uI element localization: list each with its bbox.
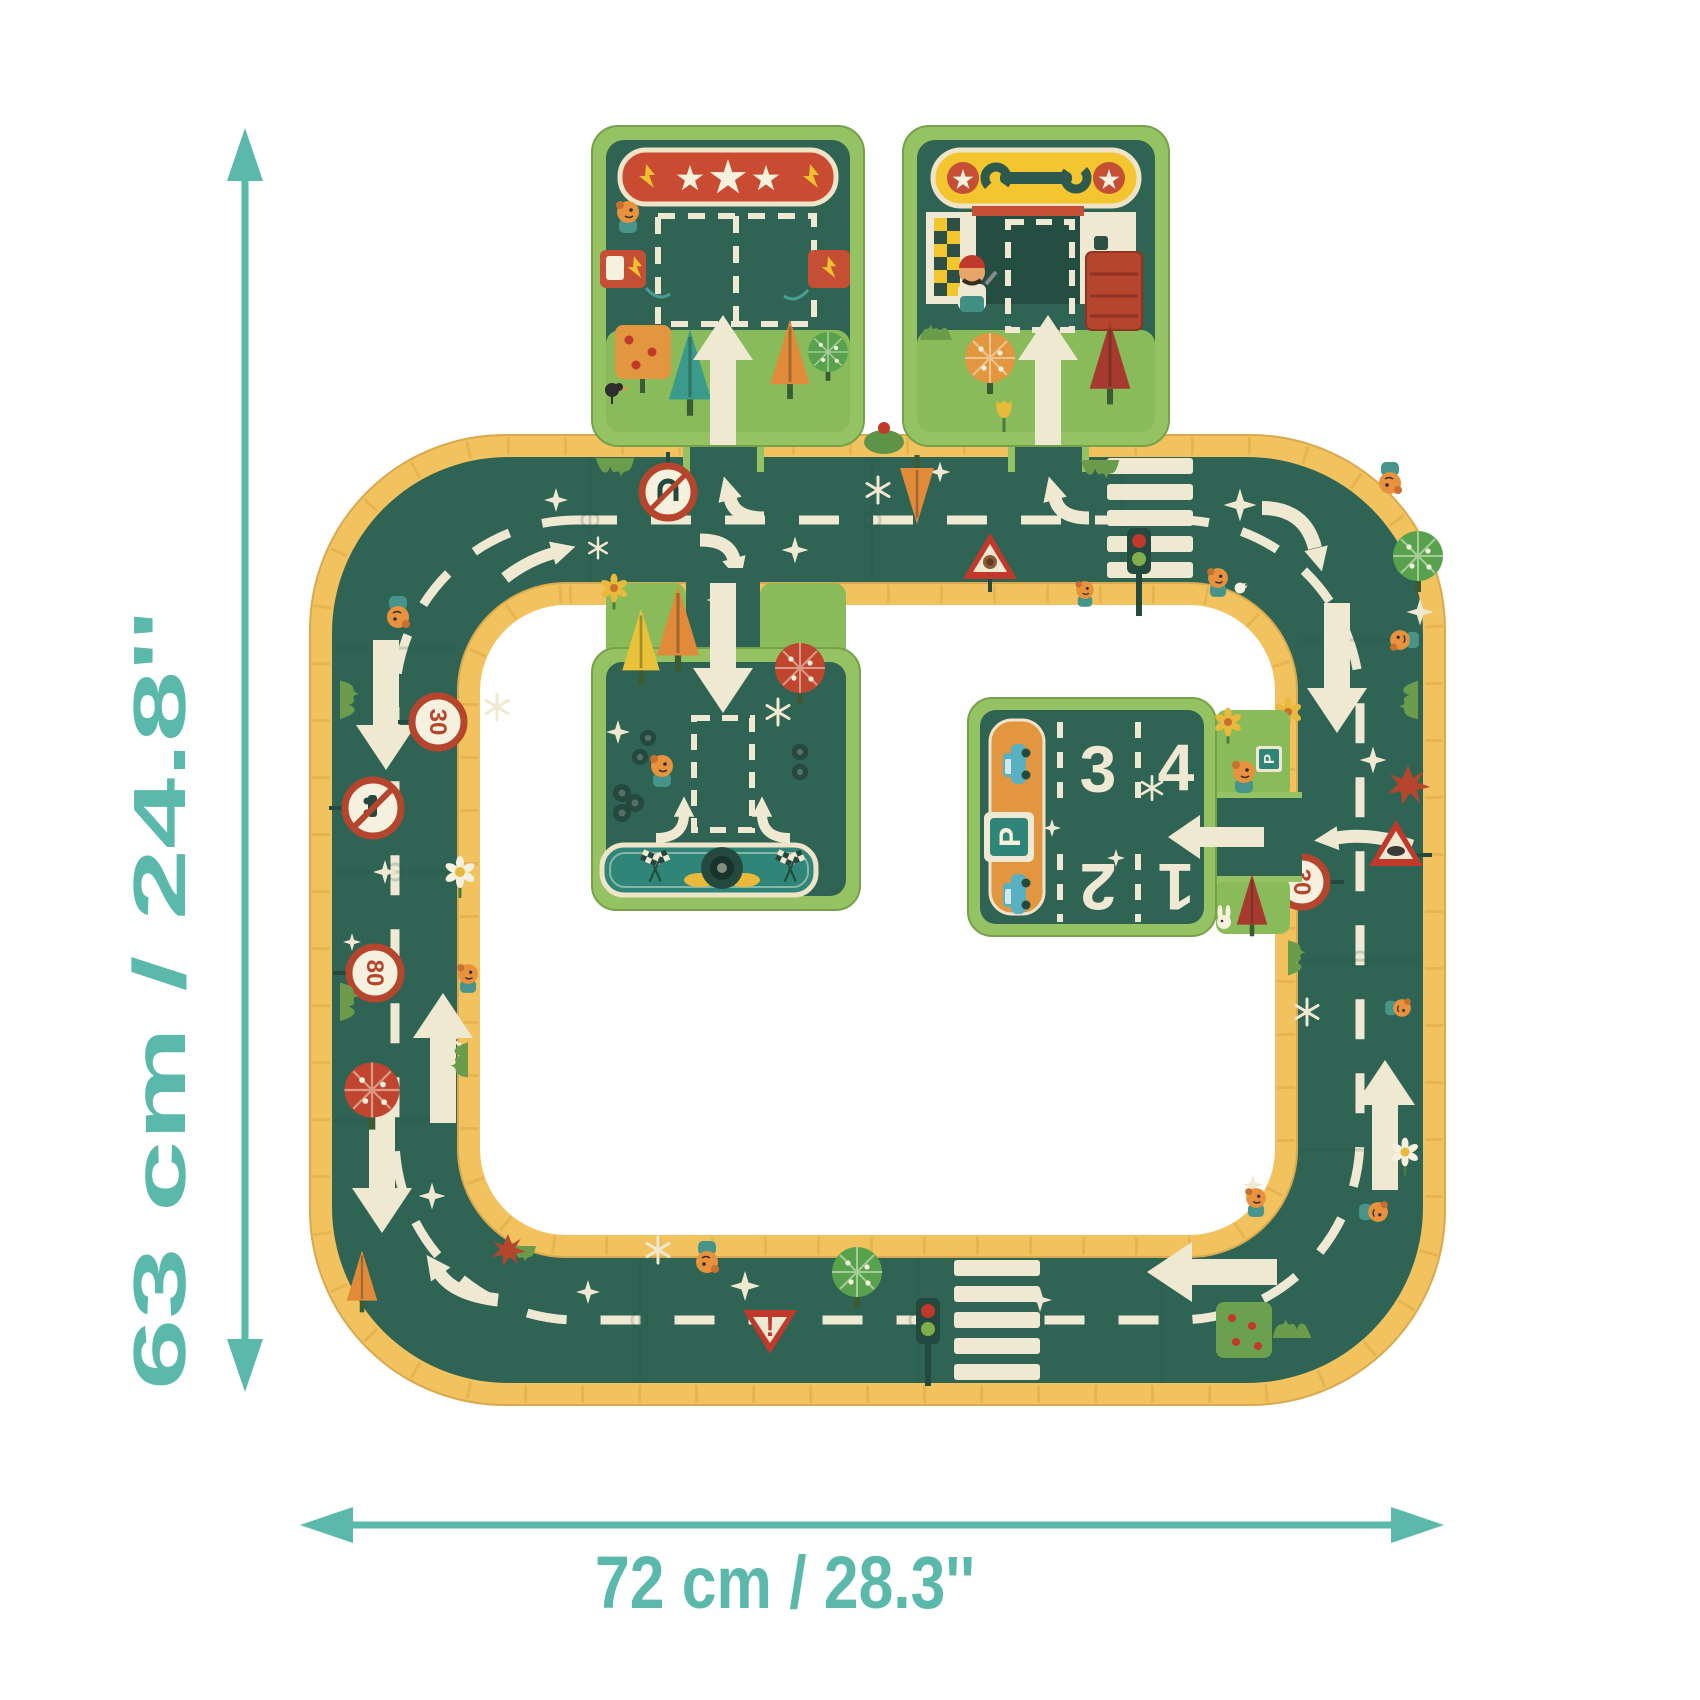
parking-space-1: 1 xyxy=(1158,850,1195,924)
red-flower-between-tiles xyxy=(878,422,890,434)
parking-entrance-column: P xyxy=(984,720,1044,914)
arrow-up-icon xyxy=(227,128,263,181)
arrow-right-icon xyxy=(1391,1507,1444,1543)
arrow-down-icon xyxy=(227,1339,263,1392)
arrow-left-icon xyxy=(300,1507,353,1543)
parking-sign-letter: P xyxy=(994,827,1027,847)
pitstop-tile xyxy=(592,568,860,910)
speed-limit-80-text: 80 xyxy=(361,960,388,987)
parking-space-2: 2 xyxy=(1080,850,1117,924)
dog-parking-sign-letter: P xyxy=(1261,754,1278,764)
parking-sign: P xyxy=(984,812,1034,862)
speed-limit-30-text: 30 xyxy=(424,709,451,736)
height-label: 63 cm / 24.8'' xyxy=(118,610,201,1390)
height-dimension: 63 cm / 24.8'' xyxy=(118,128,263,1392)
garage-tile xyxy=(903,126,1169,446)
pit-banner xyxy=(620,150,836,204)
width-dimension: 72 cm / 28.3'' xyxy=(300,1507,1444,1624)
apple-bush-icon xyxy=(1216,1302,1272,1358)
parking-space-4: 4 xyxy=(1158,730,1195,804)
product-dimension-image: 30 80 30 xyxy=(0,0,1700,1700)
width-label: 72 cm / 28.3'' xyxy=(595,1541,975,1624)
scooter-rider-character xyxy=(650,755,673,787)
parking-tile: P 3 4 2 1 P xyxy=(968,698,1302,936)
yield-exclamation-text: ! xyxy=(765,1311,774,1342)
garage-banner xyxy=(933,150,1139,206)
parking-space-3: 3 xyxy=(1080,732,1117,806)
pit-lane-tile xyxy=(592,126,864,446)
driver-character xyxy=(616,201,639,233)
finish-banner xyxy=(602,845,816,895)
